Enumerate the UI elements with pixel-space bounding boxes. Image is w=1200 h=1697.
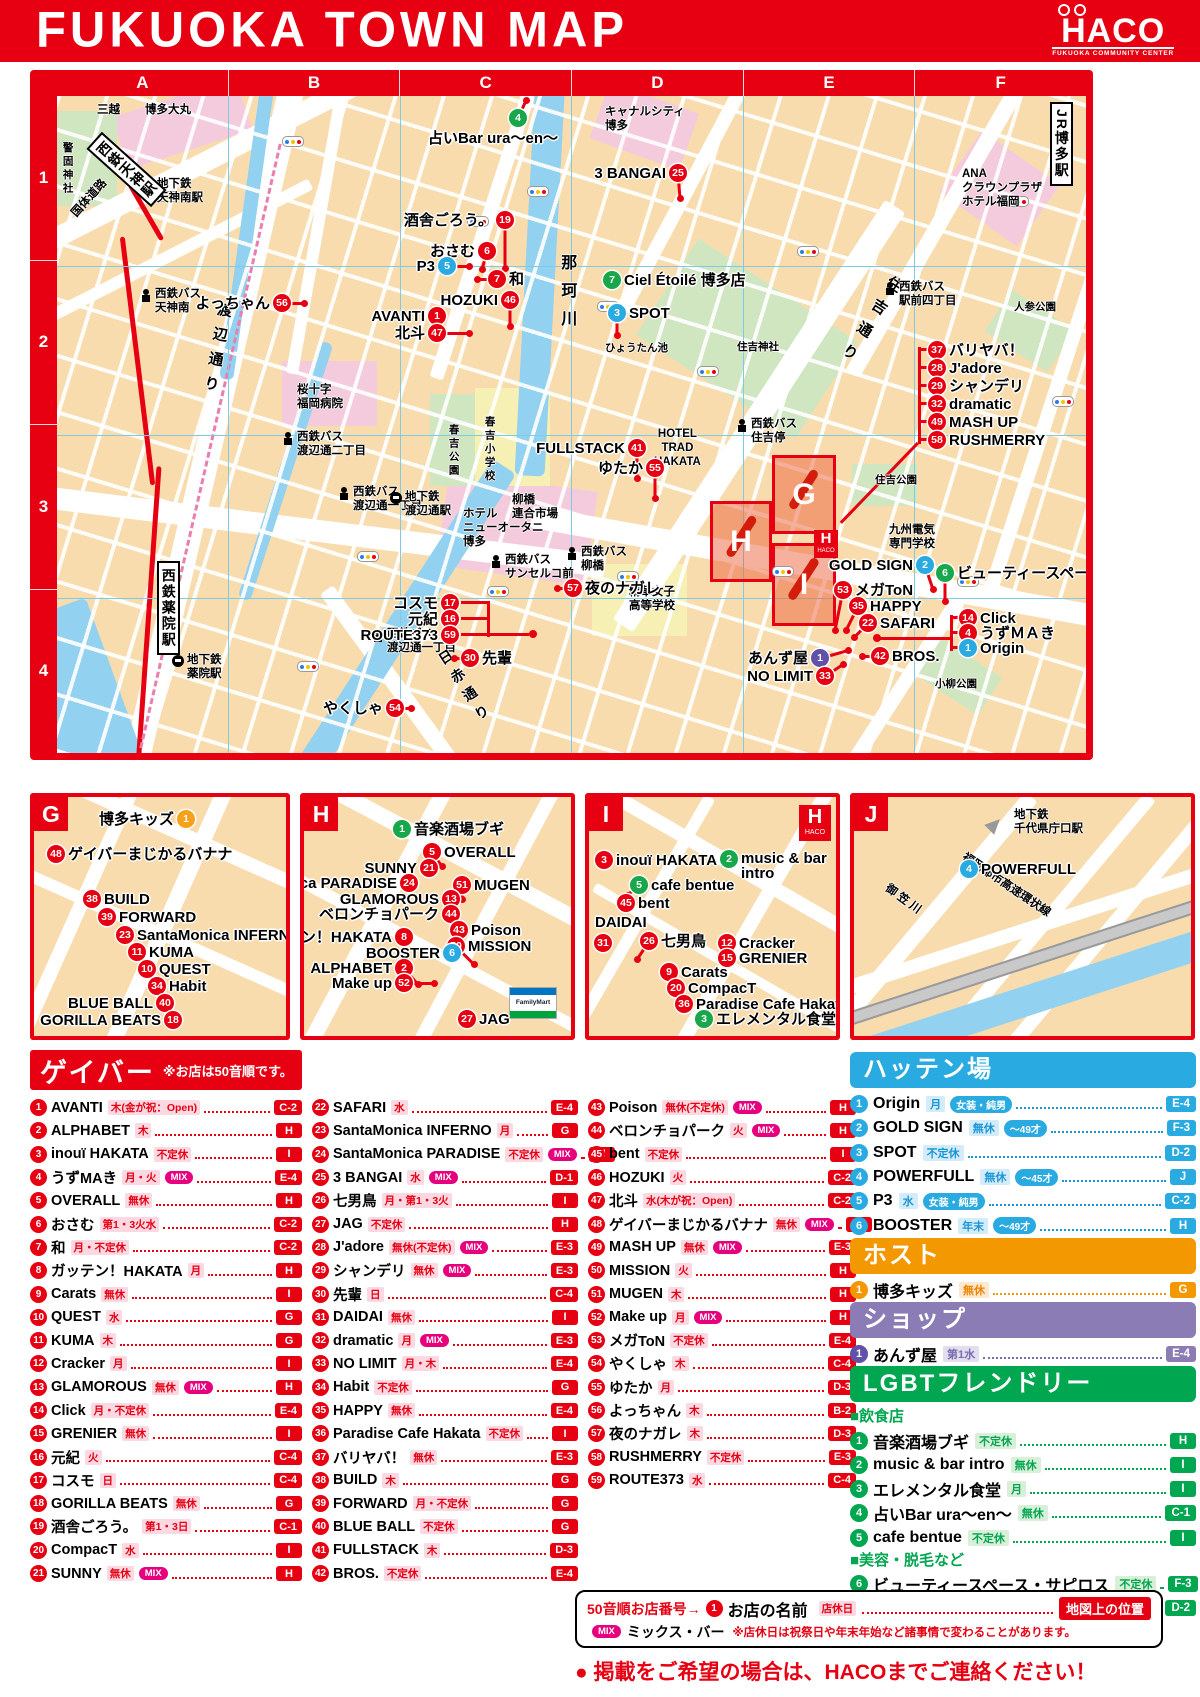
landmark-label: 小柳公園 [935, 678, 977, 691]
map-landmark: 九州電気 専門学校 [889, 524, 935, 552]
entry-number: 44 [588, 1122, 605, 1139]
entry-closed-tag: 木 [424, 1543, 441, 1558]
map-row-label: 2 [30, 260, 57, 425]
haco-building-logo: HHACO [814, 530, 838, 558]
marker-label: POWERFULL [981, 861, 1076, 878]
marker-number: 54 [386, 699, 404, 717]
directory-entry: 59ROUTE373水C-4 [588, 1469, 856, 1492]
directory-entry: 5OVERALL無休H [30, 1189, 302, 1212]
marker-number: 21 [420, 859, 438, 877]
marker-label: SPOT [629, 305, 670, 322]
entry-grid-ref: I [1170, 1530, 1196, 1546]
gaybar-directory-title: ゲイバー [40, 1051, 155, 1090]
marker-number: 53 [834, 581, 852, 599]
entry-grid-ref: G [552, 1496, 578, 1511]
gaybar-directory-header: ゲイバー ※お店は50音順です。 [30, 1050, 302, 1090]
directory-entry: 35HAPPY無休E-4 [312, 1399, 578, 1422]
entry-grid-ref: G [552, 1380, 578, 1395]
marker-number: 48 [47, 845, 65, 863]
marker-label: おさむ [430, 243, 475, 260]
entry-number: 54 [588, 1355, 605, 1372]
entry-grid-ref: I [552, 1310, 578, 1325]
leader-line [403, 1475, 548, 1485]
entry-number: 58 [588, 1449, 605, 1466]
entry-grid-ref: I [276, 1147, 302, 1162]
marker-label: Habit [169, 978, 207, 995]
entry-number: 18 [30, 1495, 47, 1512]
marker-label: MUGEN [474, 877, 530, 894]
inset-tab-label: I [589, 797, 623, 831]
map-row-header: 1234 [30, 96, 57, 753]
landmark-label: 地下鉄 薬院駅 [187, 654, 222, 682]
entry-closed-tag: 月 [672, 1310, 689, 1325]
legend-box: 50音順お店番号→ 1 お店の名前 店休日 地図上の位置 MIX ミックス・バー… [575, 1590, 1163, 1648]
entry-number: 55 [588, 1379, 605, 1396]
marker-label: SantaMonica INFERNO [137, 927, 290, 944]
leader-line [686, 1149, 826, 1159]
location-dot [507, 323, 514, 330]
leader-line [766, 1103, 826, 1113]
entry-closed-tag: 月 [1007, 1481, 1026, 1497]
directory-entry: 2ALPHABET木H [30, 1119, 302, 1142]
leader-line [462, 1173, 547, 1183]
map-landmark: 桜十字 福岡病院 [297, 384, 343, 412]
marker-label: AVANTI [371, 308, 425, 325]
landmark-label: 住吉公園 [875, 474, 917, 487]
landmark-label: 桜十字 福岡病院 [297, 384, 343, 412]
marker-label: CompacT [688, 980, 756, 997]
entry-attribute-badge: 〜49才 [1004, 1120, 1047, 1137]
marker-number: 49 [928, 413, 946, 431]
landmark-label: ANA クラウンプラザ ホテル福岡 [962, 168, 1042, 209]
entry-number: 25 [312, 1169, 329, 1186]
directory-entry: 30先輩日C-4 [312, 1282, 578, 1305]
landmark-label: JR博多駅 [1053, 109, 1070, 179]
directory-entry: 52Make up月MIXH [588, 1306, 856, 1329]
connector-line [489, 633, 529, 636]
mix-badge: MIX [460, 1241, 489, 1254]
river [57, 597, 144, 753]
entry-number: 24 [312, 1146, 329, 1163]
map-landmark: 春吉小学校 [483, 416, 496, 484]
traffic-light-icon [282, 136, 304, 147]
entry-name: Origin [873, 1095, 920, 1113]
leader-line [412, 1103, 547, 1113]
entry-number: 1 [850, 1345, 868, 1363]
landmark-label: 三越 [97, 104, 120, 118]
bus-icon [491, 555, 501, 568]
leader-line [696, 1266, 826, 1276]
marker-label: MASH UP [949, 414, 1018, 431]
marker-label: KUMA [149, 944, 194, 961]
entry-grid-ref: G [552, 1123, 578, 1138]
panel-title-or: ホスト [850, 1238, 1196, 1274]
entry-closed-tag: 月 [188, 1263, 205, 1278]
entry-number: 3 [850, 1144, 868, 1162]
directory-column-2: 22SAFARI水E-423SantaMonica INFERNO月G24San… [312, 1096, 578, 1585]
directory-entry: 18GORILLA BEATS無休G [30, 1492, 302, 1515]
directory-entry: 38BUILD木G [312, 1469, 578, 1492]
entry-name: BROS. [333, 1566, 379, 1582]
entry-closed-tag: 木 [382, 1473, 399, 1488]
entry-closed-tag: 不定休 [707, 1450, 745, 1465]
entry-number: 50 [588, 1262, 605, 1279]
location-dot [634, 956, 641, 963]
leader-line [1051, 1123, 1163, 1133]
marker-label: 先輩 [482, 650, 512, 667]
marker-number: 1 [393, 820, 411, 838]
marker-label: NO LIMIT [747, 668, 813, 685]
entry-number: 43 [588, 1099, 605, 1116]
page-title: FUKUOKA TOWN MAP [36, 1, 628, 58]
location-dot [845, 647, 852, 654]
haco-logo: HHACO [799, 805, 831, 841]
entry-attribute-badge: 〜49才 [993, 1217, 1036, 1234]
entry-number: 57 [588, 1425, 605, 1442]
entry-name: 先輩 [333, 1284, 362, 1305]
marker-label: ROUTE373 [360, 627, 438, 644]
panel-section-label: ■美容・脱毛など [850, 1550, 1196, 1572]
entry-grid-ref: C-1 [274, 1519, 302, 1534]
directory-entry: 53メガToN不定休E-4 [588, 1329, 856, 1352]
marker-number: 5 [438, 257, 456, 275]
mix-badge: MIX [548, 1148, 577, 1161]
directory-entry: 45bent不定休I [588, 1143, 856, 1166]
mix-badge: MIX [139, 1567, 168, 1580]
entry-number: 23 [312, 1122, 329, 1139]
entry-number: 41 [312, 1542, 329, 1559]
entry-grid-ref: E-4 [551, 1566, 578, 1581]
legend-number-icon: 1 [706, 1600, 723, 1617]
directory-entry: 23SantaMonica INFERNO月G [312, 1119, 578, 1142]
entry-attribute-badge: 〜45才 [1015, 1169, 1058, 1186]
marker-number: 39 [98, 908, 116, 926]
marker-label: 夜のナガレ [585, 580, 660, 597]
entry-number: 42 [312, 1565, 329, 1582]
leader-line [416, 1382, 548, 1392]
marker-number: 1 [428, 307, 446, 325]
leader-line [707, 1429, 824, 1439]
leader-line [993, 1285, 1166, 1295]
entry-closed-tag: 水 [689, 1473, 706, 1488]
mix-badge: MIX [713, 1241, 742, 1254]
entry-name: Cracker [51, 1356, 105, 1372]
entry-name: JAG [333, 1216, 363, 1232]
entry-grid-ref: C-2 [274, 1217, 302, 1232]
entry-name: POWERFULL [873, 1168, 974, 1186]
entry-name: RUSHMERRY [609, 1449, 702, 1465]
entry-grid-ref: G [276, 1496, 302, 1511]
marker-number: 33 [816, 667, 834, 685]
leader-line [712, 1336, 825, 1346]
leader-line [688, 1289, 826, 1299]
entry-number: 15 [30, 1425, 47, 1442]
location-dot [859, 653, 866, 660]
leader-line [1062, 1172, 1166, 1182]
entry-number: 14 [30, 1402, 47, 1419]
directory-entry: 42BROS.不定休E-4 [312, 1562, 578, 1585]
legend-note: ※店休日は祝祭日や年末年始など諸事情で変わることがあります。 [732, 1624, 1076, 1640]
directory-entry: 13GLAMOROUS無休MIXH [30, 1376, 302, 1399]
panel-entry: 3SPOT不定休D-2 [850, 1141, 1196, 1165]
marker-number: 38 [83, 890, 101, 908]
entry-closed-tag: 月・不定休 [71, 1240, 130, 1255]
entry-closed-tag: 日 [100, 1473, 117, 1488]
directory-entry: 58RUSHMERRY不定休E-3 [588, 1445, 856, 1468]
entry-name: inouï HAKATA [51, 1146, 149, 1162]
inset-map-G: G1博多キッズ48ゲイバーまじかるバナナ38BUILD39FORWARD23Sa… [30, 793, 290, 1040]
marker-label: BUILD [104, 891, 150, 908]
traffic-light-icon [297, 661, 319, 672]
leader-line [1020, 1436, 1166, 1446]
location-dot [408, 705, 415, 712]
marker-number: 11 [128, 943, 146, 961]
entry-name: シャンデリ [333, 1260, 406, 1281]
entry-closed-tag: 木 [672, 1356, 689, 1371]
directory-column-1: 1AVANTI木(金が祝：Open)C-22ALPHABET木H3inouï H… [30, 1096, 302, 1585]
map-landmark: ANA クラウンプラザ ホテル福岡 [962, 168, 1042, 209]
entry-closed-tag: 水(木が祝：Open) [643, 1193, 735, 1208]
leader-line [155, 1126, 272, 1136]
entry-closed-tag: 火 [85, 1450, 102, 1465]
inset-tab-label: H [304, 797, 338, 831]
map-landmark: 人参公園 [1014, 301, 1056, 314]
panel-entry: 2GOLD SIGN無休〜49才F-3 [850, 1116, 1196, 1140]
marker-label: GRENIER [739, 950, 807, 967]
marker-number: 19 [496, 211, 514, 229]
entry-number: 7 [30, 1239, 47, 1256]
marker-number: 25 [669, 164, 687, 182]
directory-entry: 56よっちゃん木B-2 [588, 1399, 856, 1422]
entry-name: MASH UP [609, 1239, 676, 1255]
directory-entry: 47北斗水(木が祝：Open)C-2 [588, 1189, 856, 1212]
marker-label: ゆたか [598, 460, 643, 477]
map-landmark: 那珂川 [557, 254, 576, 338]
entry-number: 13 [30, 1379, 47, 1396]
entry-number: 53 [588, 1332, 605, 1349]
marker-label: SantaMonica PARADISE [300, 875, 397, 892]
landmark-label: 地下鉄 渡辺通駅 [405, 491, 451, 519]
marker-label: bent [638, 895, 670, 912]
marker-label: HOZUKI [441, 292, 499, 309]
map-landmark: 博多大丸 [145, 104, 191, 118]
marker-label: J'adore [949, 360, 1002, 377]
legend-closed-tag: 店休日 [819, 1601, 857, 1616]
connector-line [461, 601, 489, 604]
marker-number: 4 [509, 109, 527, 127]
panel-entry: 4占いBar ura〜en〜無休C-1 [850, 1501, 1196, 1525]
entry-number: 20 [30, 1542, 47, 1559]
grid-line [571, 96, 572, 753]
entry-name: GOLD SIGN [873, 1119, 963, 1137]
directory-entry: 54やくしゃ木C-4 [588, 1352, 856, 1375]
marker-number: 52 [395, 974, 413, 992]
entry-name: KUMA [51, 1333, 95, 1349]
marker-label: P3 [417, 258, 435, 275]
entry-grid-ref: F-3 [1168, 1576, 1197, 1592]
landmark-label: 博多大丸 [145, 104, 191, 118]
location-dot [832, 627, 839, 634]
entry-number: 5 [850, 1529, 868, 1547]
entry-name: バリヤバ！ [333, 1447, 405, 1468]
entry-grid-ref: I [276, 1543, 302, 1558]
landmark-label: 西鉄薬院駅 [160, 568, 177, 648]
map-landmark: 春吉公園 [447, 424, 460, 478]
marker-label: OVERALL [444, 844, 516, 861]
mix-badge: MIX [429, 1171, 458, 1184]
marker-label: Carats [681, 964, 728, 981]
leader-line [106, 1452, 271, 1462]
map-column-label: C [399, 70, 571, 96]
entry-name: FULLSTACK [333, 1542, 419, 1558]
entry-closed-tag: 無休(不定休) [662, 1100, 728, 1115]
marker-label: HAPPY [870, 598, 922, 615]
landmark-label: 九州電気 専門学校 [889, 524, 935, 552]
entry-name: NO LIMIT [333, 1356, 397, 1372]
marker-label: BROS. [892, 648, 940, 665]
location-dot [652, 495, 659, 502]
entry-grid-ref: H [1170, 1218, 1196, 1234]
marker-label: 音楽酒場ブギ [414, 821, 504, 838]
leader-line [388, 1289, 547, 1299]
map-landmark: 小柳公園 [935, 678, 977, 691]
leader-line [143, 1545, 272, 1555]
entry-closed-tag: 年末 [958, 1218, 988, 1234]
mix-badge: MIX [752, 1124, 781, 1137]
entry-grid-ref: C-2 [274, 1240, 302, 1255]
entry-number: 11 [30, 1332, 47, 1349]
bus-icon [885, 282, 895, 295]
leader-line [443, 1359, 547, 1369]
inset-map-J: J地下鉄 千代県庁口駅御 笠 川福岡都市高速環状線4POWERFULL [850, 793, 1195, 1040]
marker-number: 29 [928, 377, 946, 395]
entry-closed-tag: 木 [135, 1123, 152, 1138]
inset-map-I: I3inouï HAKATA2music & bar intro5cafe be… [585, 793, 840, 1040]
directory-entry: 32dramatic月MIXE-3 [312, 1329, 578, 1352]
leader-line [204, 1499, 272, 1509]
location-dot [942, 598, 949, 605]
entry-closed-tag: 第1水 [943, 1346, 979, 1362]
leader-line [709, 1475, 824, 1485]
marker-number: 3 [595, 851, 613, 869]
mix-badge: MIX [420, 1334, 449, 1347]
entry-closed-tag: 不定休 [975, 1433, 1016, 1449]
directory-entry: 49MASH UP無休MIXE-3 [588, 1236, 856, 1259]
entry-name: ゲイバーまじかるバナナ [609, 1214, 768, 1235]
marker-label: 占いBar ura〜en〜 [428, 130, 558, 147]
entry-grid-ref: E-3 [551, 1263, 578, 1278]
map-column-label: D [571, 70, 743, 96]
marker-number: 43 [450, 921, 468, 939]
leader-line [153, 1429, 272, 1439]
location-dot [873, 634, 881, 642]
entry-closed-tag: 月 [926, 1096, 945, 1112]
entry-grid-ref: H [276, 1263, 302, 1278]
location-dot [554, 585, 561, 592]
entry-closed-tag: 無休 [388, 1310, 415, 1325]
district-patch [636, 239, 858, 439]
directory-entry: 29シャンデリ無休MIXE-3 [312, 1259, 578, 1282]
connector-line [461, 633, 489, 636]
marker-number: 22 [859, 614, 877, 632]
entry-closed-tag: 不定休 [670, 1333, 708, 1348]
leader-line [838, 1219, 842, 1229]
entry-name: 音楽酒場ブギ [873, 1429, 969, 1453]
entry-grid-ref: F-3 [1167, 1120, 1196, 1136]
entry-number: 52 [588, 1309, 605, 1326]
bus-icon [737, 419, 747, 432]
map-column-label: A [57, 70, 228, 96]
entry-number: 16 [30, 1449, 47, 1466]
legend-position-badge: 地図上の位置 [1059, 1597, 1151, 1620]
entry-number: 2 [30, 1122, 47, 1139]
landmark-label: 御 笠 川 [882, 882, 923, 917]
leader-line [707, 1406, 825, 1416]
marker-label: 元紀 [408, 611, 438, 628]
directory-entry: 22SAFARI水E-4 [312, 1096, 578, 1119]
entry-number: 26 [312, 1192, 329, 1209]
marker-label: QUEST [159, 961, 211, 978]
leader-line [126, 1312, 272, 1322]
entry-grid-ref: I [276, 1356, 302, 1371]
marker-number: 34 [148, 977, 166, 995]
location-dot [502, 265, 509, 272]
entry-closed-tag: 無休 [959, 1282, 989, 1298]
directory-entry: 27JAG不定休H [312, 1212, 578, 1235]
bus-icon [567, 547, 577, 560]
leader-line [693, 1359, 825, 1369]
entry-grid-ref: E-4 [551, 1356, 578, 1371]
entry-grid-ref: C-1 [1165, 1505, 1196, 1521]
leader-line [441, 1452, 547, 1462]
leader-line [132, 1289, 272, 1299]
entry-closed-tag: 木(金が祝：Open) [108, 1100, 200, 1115]
legend-prefix: 50音順お店番号→ [587, 1599, 701, 1619]
grid-line [57, 598, 1086, 599]
map-landmark: 地下鉄 千代県庁口駅 [1014, 809, 1083, 837]
directory-entry: 17コスモ日C-4 [30, 1469, 302, 1492]
marker-label: DAIDAI [595, 914, 647, 931]
panel-entry: 1音楽酒場ブギ不定休H [850, 1428, 1196, 1452]
directory-entry: 6おさむ第1・3火水C-2 [30, 1212, 302, 1235]
directory-entry: 15GRENIER無休I [30, 1422, 302, 1445]
entry-closed-tag: 無休 [107, 1566, 134, 1581]
marker-number: 36 [675, 995, 693, 1013]
panel-entry: 6BOOSTER年末〜49才H [850, 1213, 1196, 1237]
map-landmark: 西鉄バス サンセルコ前 [505, 554, 574, 582]
map-landmark: 西鉄薬院駅 [157, 561, 180, 655]
leader-line [748, 1452, 824, 1462]
entry-attribute-badge: 女装・純男 [950, 1096, 1012, 1113]
directory-entry: 12Cracker月I [30, 1352, 302, 1375]
connector-line [461, 617, 489, 620]
familymart-logo: FamilyMart [509, 987, 557, 1019]
entry-closed-tag: 月 [497, 1123, 514, 1138]
entry-grid-ref: C-2 [274, 1100, 302, 1115]
entry-closed-tag: 無休 [1011, 1457, 1041, 1473]
leader-line [425, 1569, 546, 1579]
entry-number: 4 [850, 1504, 868, 1522]
directory-entry: 57夜のナガレ木D-3 [588, 1422, 856, 1445]
panel-entry: 4POWERFULL無休〜45才J [850, 1165, 1196, 1189]
landmark-label: キャナルシティ 博多 [605, 106, 685, 134]
entry-number: 1 [850, 1281, 868, 1299]
entry-number: 4 [30, 1169, 47, 1186]
entry-name: bent [609, 1146, 640, 1162]
directory-entry: 16元紀火C-4 [30, 1445, 302, 1468]
entry-name: ROUTE373 [609, 1472, 684, 1488]
marker-number: 7 [603, 271, 621, 289]
